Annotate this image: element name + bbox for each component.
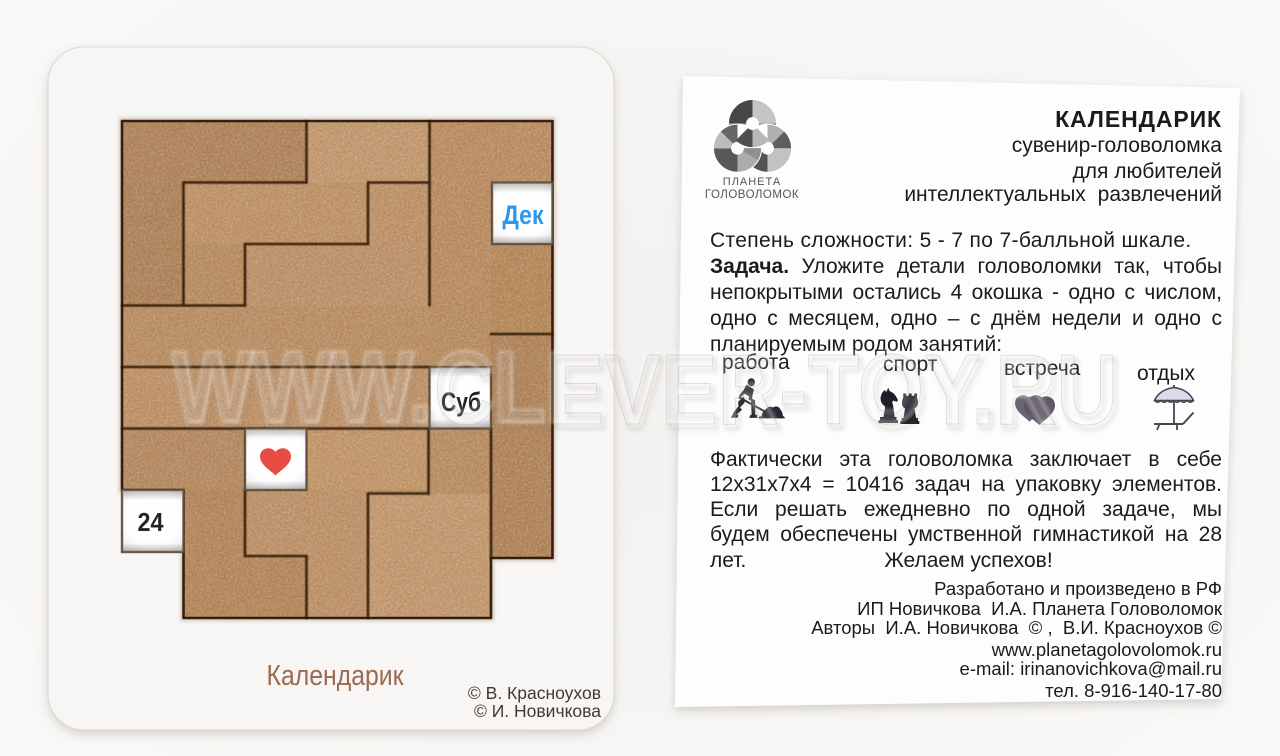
svg-text:Календарик: Календарик (267, 660, 404, 692)
svg-text:24: 24 (138, 507, 164, 537)
svg-text:Дек: Дек (503, 200, 544, 230)
svg-text:© И. Новичкова: © И. Новичкова (474, 701, 601, 721)
svg-text:© В. Красноухов: © В. Красноухов (468, 683, 601, 703)
svg-text:Суб: Суб (441, 387, 481, 417)
